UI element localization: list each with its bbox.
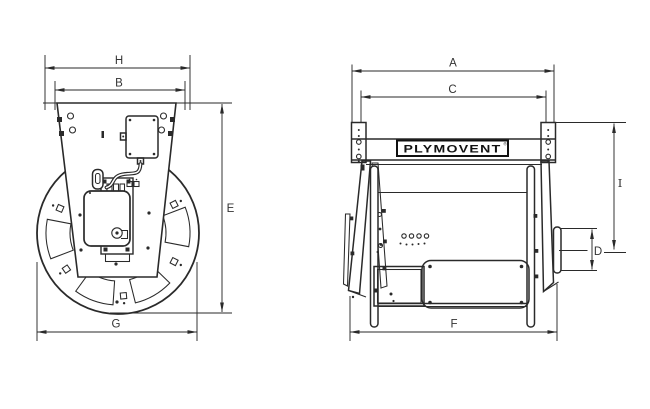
brand-logo-text: PLYMOVENT [404, 144, 502, 156]
dim-label-f: F [450, 319, 457, 331]
dim-label-a: A [449, 58, 457, 70]
technical-drawing-page: H B E G PLYMOVENT [0, 0, 650, 409]
dim-label-g: G [112, 319, 121, 331]
junction-box [121, 116, 159, 164]
dim-label-b: B [115, 78, 123, 90]
slot-mark [102, 131, 105, 138]
front-view: H B E G [37, 55, 235, 341]
dimension-c: C [361, 84, 546, 122]
reel-dimension-drawing: H B E G PLYMOVENT [0, 0, 650, 409]
dim-label-e: E [227, 203, 235, 215]
dimension-f: F [350, 284, 557, 341]
spring-motor-housing [84, 191, 130, 246]
dimension-d: D [559, 229, 602, 271]
dim-label-i: I [618, 176, 623, 190]
dimension-i: I [556, 123, 626, 253]
lower-housings [374, 261, 529, 309]
right-flange [534, 161, 562, 292]
side-view: PLYMOVENT ® [344, 58, 627, 342]
dim-label-d: D [594, 246, 602, 258]
brand-logo: PLYMOVENT ® [397, 141, 508, 157]
dim-label-h: H [115, 55, 123, 67]
dim-label-c: C [448, 84, 456, 96]
outlet-hub [554, 227, 562, 273]
drum-body [377, 193, 528, 307]
